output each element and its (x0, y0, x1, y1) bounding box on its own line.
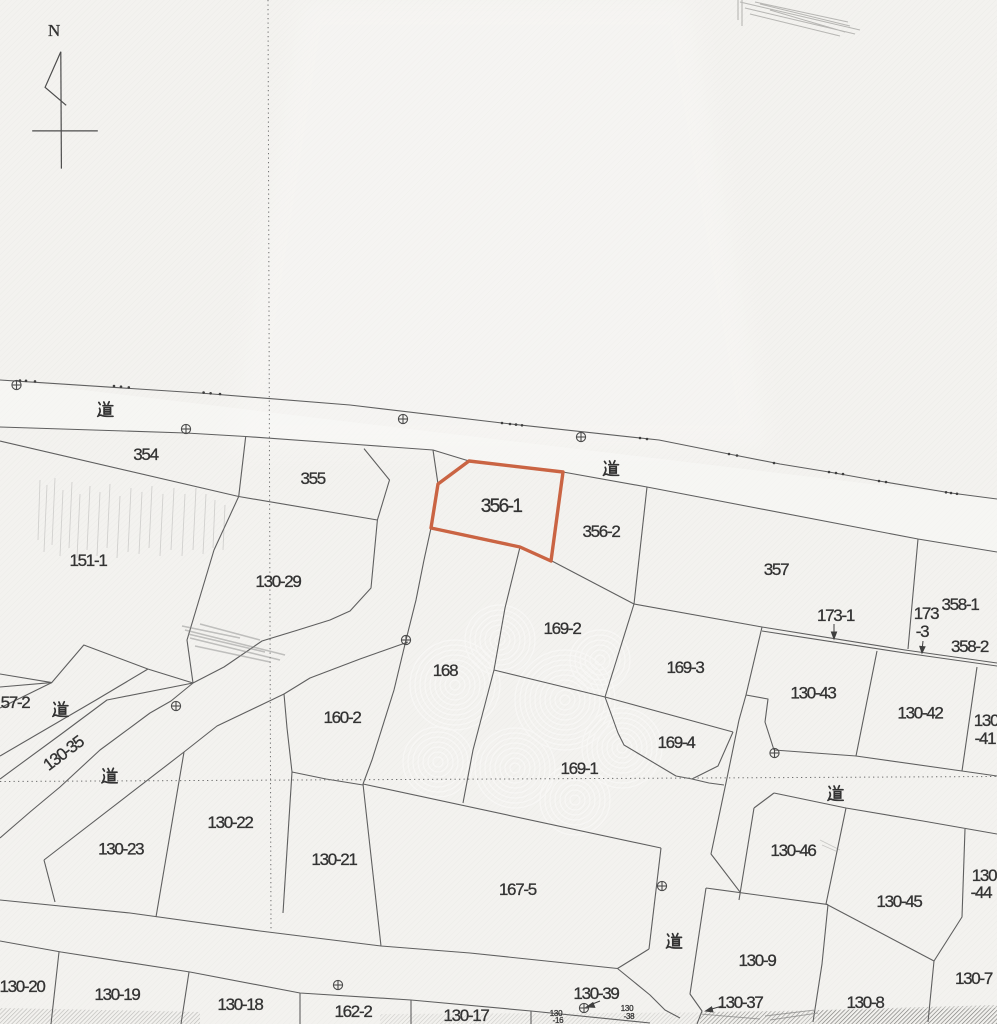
svg-text:130-21: 130-21 (311, 850, 357, 869)
svg-text:130-43: 130-43 (790, 684, 836, 703)
svg-text:173: 173 (914, 604, 939, 623)
svg-text:-44: -44 (971, 883, 993, 902)
svg-text:130-45: 130-45 (876, 892, 922, 911)
svg-text:169-4: 169-4 (658, 733, 696, 752)
svg-text:130-19: 130-19 (94, 985, 140, 1004)
svg-text:57-2: 57-2 (1, 693, 31, 712)
svg-text:130-20: 130-20 (0, 977, 45, 996)
svg-text:160-2: 160-2 (324, 708, 362, 727)
svg-text:356-1: 356-1 (481, 496, 523, 517)
svg-text:130-7: 130-7 (955, 969, 993, 988)
svg-text:-3: -3 (916, 622, 929, 641)
svg-text:169-1: 169-1 (561, 759, 599, 778)
svg-text:130-29: 130-29 (255, 572, 301, 591)
svg-text:356-2: 356-2 (583, 522, 621, 541)
svg-text:130-37: 130-37 (717, 993, 763, 1012)
svg-text:130-22: 130-22 (207, 813, 253, 832)
svg-text:130: 130 (974, 711, 997, 730)
svg-text:130-18: 130-18 (217, 995, 263, 1014)
svg-text:169-3: 169-3 (667, 658, 705, 677)
svg-text:N: N (48, 21, 60, 40)
svg-text:357: 357 (764, 560, 789, 579)
svg-text:358-2: 358-2 (951, 637, 989, 656)
svg-text:130-39: 130-39 (573, 984, 619, 1003)
svg-text:354: 354 (133, 445, 158, 464)
svg-text:169-2: 169-2 (544, 619, 582, 638)
svg-text:130-42: 130-42 (897, 704, 943, 723)
svg-text:130-9: 130-9 (739, 951, 777, 970)
svg-text:162-2: 162-2 (335, 1002, 373, 1021)
svg-text:130-46: 130-46 (770, 841, 816, 860)
svg-text:130-23: 130-23 (98, 840, 144, 859)
svg-text:-41: -41 (975, 729, 997, 748)
svg-text:167-5: 167-5 (499, 880, 537, 899)
svg-text:168: 168 (433, 661, 458, 680)
svg-text:173-1: 173-1 (817, 606, 855, 625)
svg-text:355: 355 (300, 469, 325, 488)
svg-text:358-1: 358-1 (942, 595, 980, 614)
svg-text:151-1: 151-1 (70, 551, 108, 570)
